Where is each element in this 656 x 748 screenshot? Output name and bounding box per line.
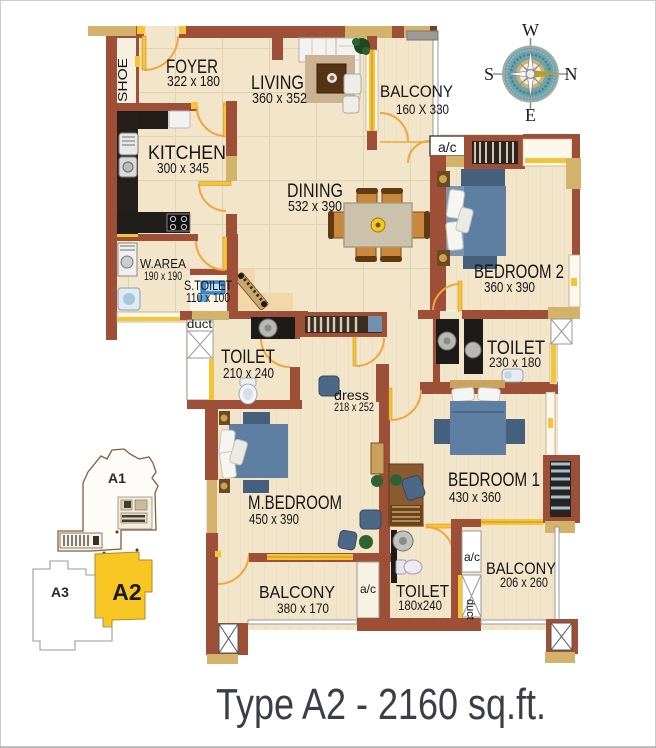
svg-text:W: W: [522, 20, 539, 40]
svg-text:230 x 180: 230 x 180: [489, 354, 541, 370]
svg-text:a/c: a/c: [360, 582, 376, 596]
svg-text:A1: A1: [108, 470, 126, 486]
svg-text:322 x 180: 322 x 180: [167, 73, 220, 90]
svg-text:180x240: 180x240: [398, 597, 442, 613]
svg-text:N: N: [565, 64, 578, 84]
svg-text:110 x 100: 110 x 100: [186, 291, 230, 305]
svg-text:BALCONY: BALCONY: [380, 83, 453, 101]
svg-text:BALCONY: BALCONY: [259, 582, 335, 602]
svg-text:SHOE: SHOE: [115, 58, 130, 102]
svg-text:190 x 190: 190 x 190: [144, 271, 182, 283]
svg-text:380 x 170: 380 x 170: [277, 600, 329, 616]
svg-text:A3: A3: [51, 584, 69, 600]
svg-text:160 X 330: 160 X 330: [396, 101, 449, 117]
svg-text:duct: duct: [464, 599, 476, 620]
svg-text:duct: duct: [187, 317, 213, 331]
svg-text:360 x 390: 360 x 390: [484, 279, 535, 296]
svg-text:218 x 252: 218 x 252: [334, 402, 374, 414]
svg-text:206 x 260: 206 x 260: [500, 575, 548, 590]
svg-text:a/c: a/c: [438, 139, 457, 155]
svg-text:E: E: [525, 105, 536, 125]
svg-text:BEDROOM 1: BEDROOM 1: [448, 470, 540, 491]
svg-text:450 x 390: 450 x 390: [249, 511, 299, 528]
svg-text:W.AREA: W.AREA: [140, 256, 186, 271]
svg-text:430 x 360: 430 x 360: [449, 489, 501, 506]
svg-text:A2: A2: [112, 579, 141, 605]
svg-text:S: S: [484, 64, 494, 84]
svg-text:a/c: a/c: [464, 550, 480, 564]
svg-text:300 x 345: 300 x 345: [157, 160, 209, 177]
svg-text:Type A2 - 2160 sq.ft.: Type A2 - 2160 sq.ft.: [216, 680, 546, 729]
svg-text:210 x 240: 210 x 240: [223, 365, 274, 382]
svg-text:dress: dress: [334, 387, 369, 403]
svg-text:360 x 352: 360 x 352: [252, 90, 307, 107]
svg-text:532 x 390: 532 x 390: [288, 198, 342, 215]
